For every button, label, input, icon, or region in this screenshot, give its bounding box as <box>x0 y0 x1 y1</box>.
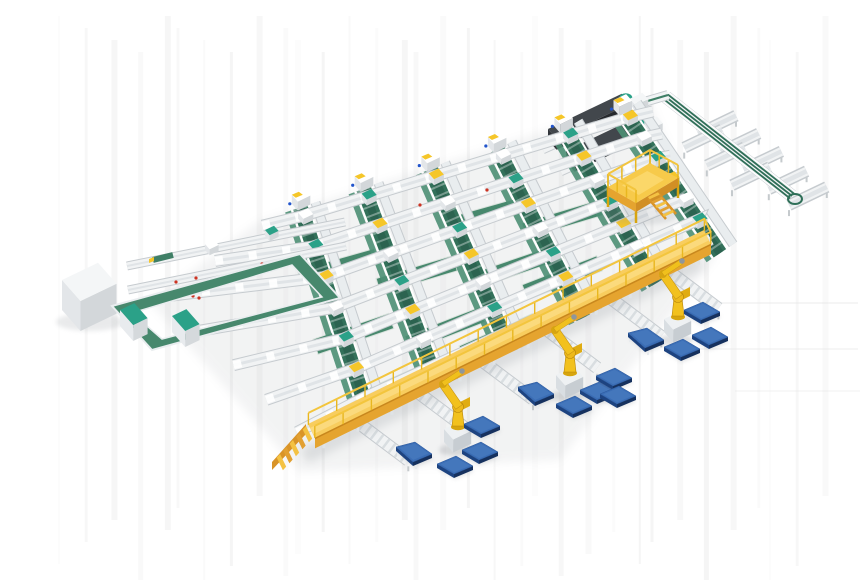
emergency-dot <box>197 296 200 299</box>
factory-3d-render <box>0 0 860 580</box>
factory-render-stage <box>0 0 860 580</box>
emergency-dot <box>418 203 421 206</box>
emergency-dot <box>485 188 488 191</box>
blue-pallet <box>692 327 729 350</box>
